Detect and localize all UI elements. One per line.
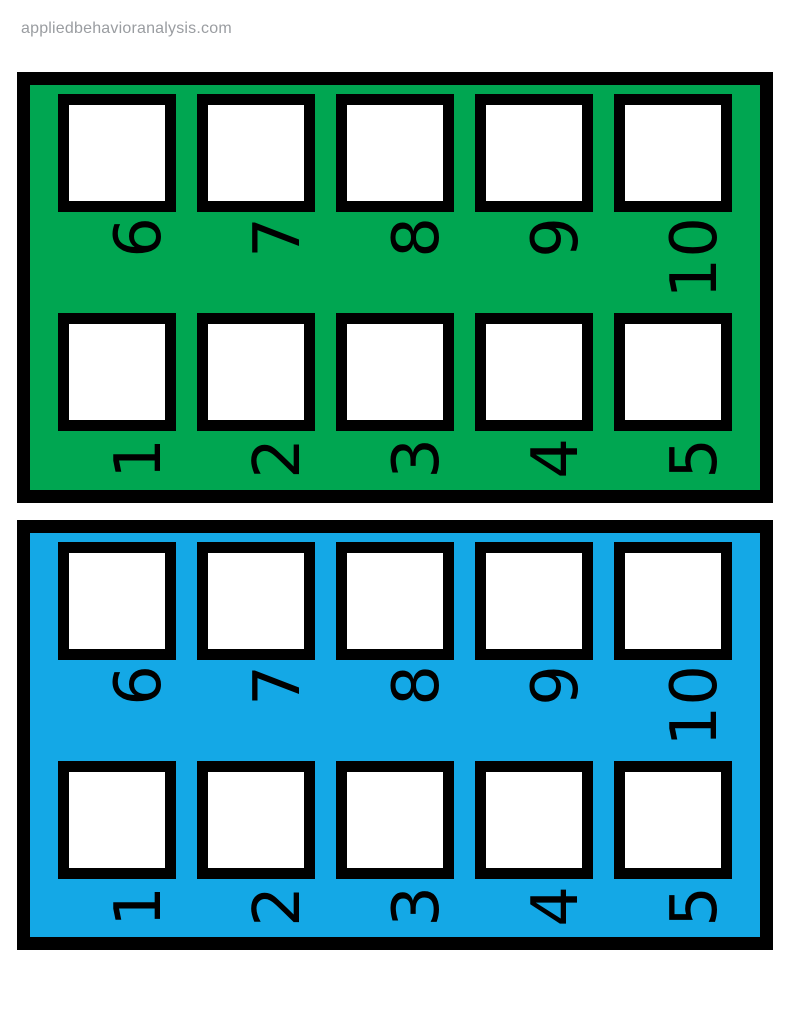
token-square	[475, 761, 593, 879]
token-square	[614, 542, 732, 660]
token-square	[336, 542, 454, 660]
token-square	[197, 761, 315, 879]
slot-number: 9	[523, 217, 589, 313]
token-square	[197, 94, 315, 212]
number-cell: 7	[197, 212, 315, 313]
number-cell: 5	[614, 431, 732, 490]
number-cell: 1	[58, 879, 176, 937]
number-cell: 5	[614, 879, 732, 937]
slot-number: 9	[523, 665, 589, 761]
square-row-top	[30, 542, 760, 660]
slot-number: 3	[384, 886, 450, 982]
worksheet-page: appliedbehavioranalysis.com 6 7 8 9 10	[0, 0, 791, 1024]
number-cell: 6	[58, 660, 176, 761]
number-row-bottom: 1 2 3 4 5	[30, 879, 760, 937]
token-square	[475, 313, 593, 431]
number-cell: 8	[336, 212, 454, 313]
square-row-top	[30, 94, 760, 212]
square-row-bottom	[30, 313, 760, 431]
number-cell: 7	[197, 660, 315, 761]
token-square	[58, 313, 176, 431]
token-square	[58, 761, 176, 879]
token-board-blue-inner: 6 7 8 9 10 1 2 3 4 5	[30, 533, 760, 937]
token-square	[336, 94, 454, 212]
number-row-top: 6 7 8 9 10	[30, 212, 760, 313]
slot-number: 8	[384, 665, 450, 761]
token-board-green: 6 7 8 9 10 1 2 3 4 5	[17, 72, 773, 503]
token-square	[614, 761, 732, 879]
slot-number: 6	[106, 217, 172, 313]
token-square	[614, 313, 732, 431]
token-square	[58, 94, 176, 212]
number-cell: 10	[614, 660, 732, 761]
number-cell: 1	[58, 431, 176, 490]
number-row-bottom: 1 2 3 4 5	[30, 431, 760, 490]
number-cell: 2	[197, 431, 315, 490]
number-cell: 9	[475, 660, 593, 761]
token-square	[336, 313, 454, 431]
token-square	[58, 542, 176, 660]
site-watermark: appliedbehavioranalysis.com	[21, 20, 232, 38]
number-cell: 4	[475, 431, 593, 490]
token-square	[475, 542, 593, 660]
number-cell: 10	[614, 212, 732, 313]
slot-number: 4	[523, 886, 589, 982]
token-square	[336, 761, 454, 879]
slot-number: 6	[106, 665, 172, 761]
number-cell: 3	[336, 879, 454, 937]
number-cell: 4	[475, 879, 593, 937]
slot-number: 10	[662, 217, 728, 313]
token-square	[197, 542, 315, 660]
slot-number: 2	[245, 886, 311, 982]
token-square	[197, 313, 315, 431]
token-board-blue: 6 7 8 9 10 1 2 3 4 5	[17, 520, 773, 950]
token-square	[475, 94, 593, 212]
slot-number: 5	[662, 886, 728, 982]
square-row-bottom	[30, 761, 760, 879]
slot-number: 8	[384, 217, 450, 313]
slot-number: 7	[245, 217, 311, 313]
slot-number: 10	[662, 665, 728, 761]
slot-number: 1	[106, 886, 172, 982]
number-cell: 3	[336, 431, 454, 490]
number-cell: 2	[197, 879, 315, 937]
number-cell: 8	[336, 660, 454, 761]
number-cell: 6	[58, 212, 176, 313]
number-cell: 9	[475, 212, 593, 313]
slot-number: 7	[245, 665, 311, 761]
token-board-green-inner: 6 7 8 9 10 1 2 3 4 5	[30, 85, 760, 490]
number-row-top: 6 7 8 9 10	[30, 660, 760, 761]
token-square	[614, 94, 732, 212]
